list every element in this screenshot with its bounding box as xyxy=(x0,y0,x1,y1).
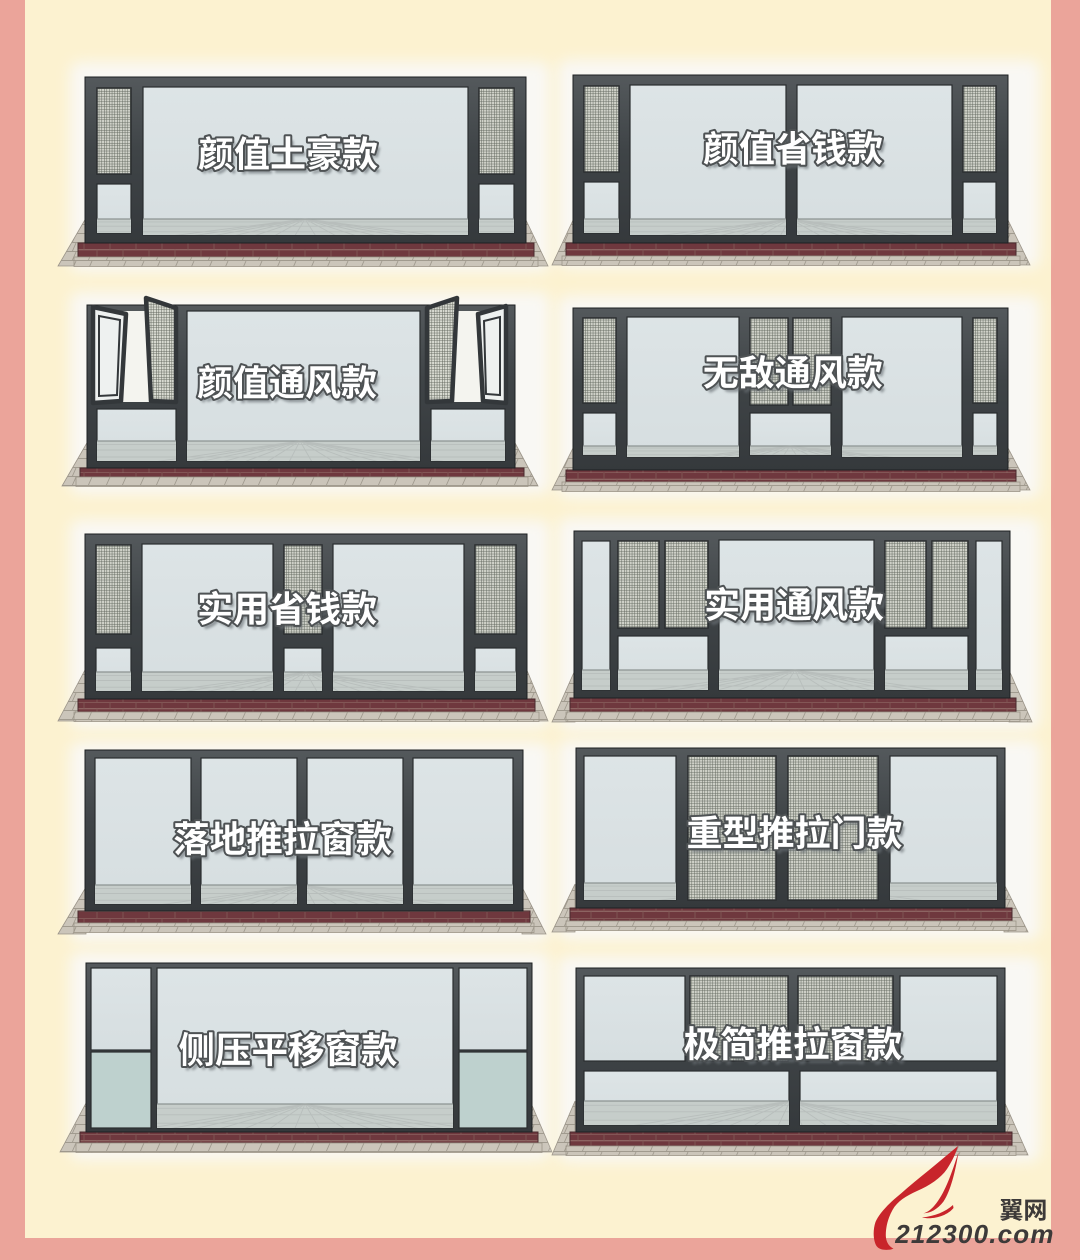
svg-text:212300.com: 212300.com xyxy=(894,1219,1054,1249)
